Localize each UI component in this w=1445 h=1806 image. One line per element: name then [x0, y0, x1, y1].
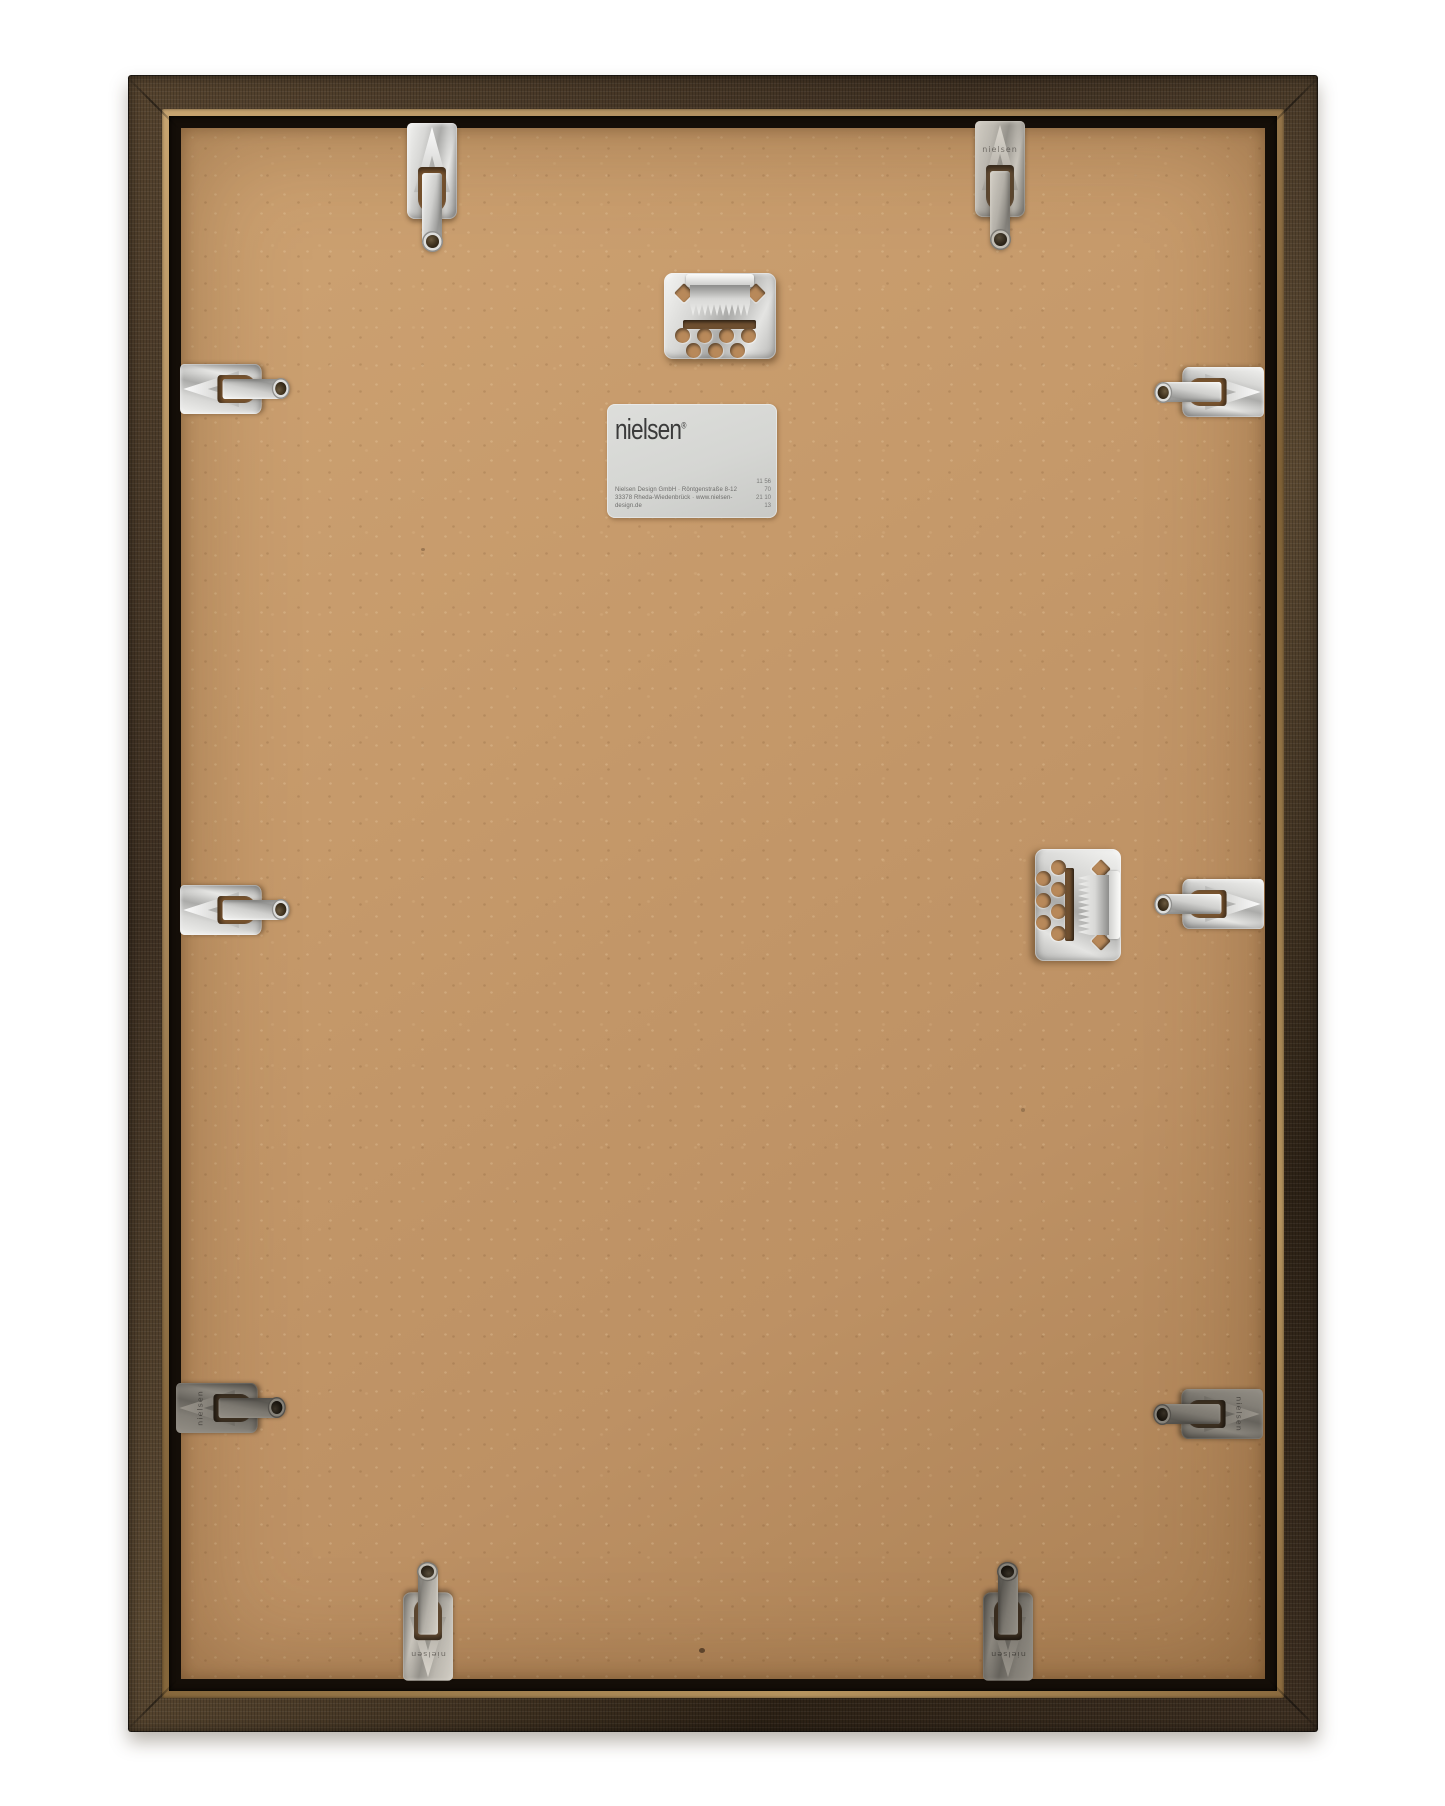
hanger-hole	[741, 328, 756, 343]
hanger-hole	[1052, 904, 1067, 919]
hanger-hole	[1037, 893, 1052, 908]
sawtooth-hanger-top-center	[664, 273, 776, 359]
hanger-hole	[1037, 915, 1052, 930]
hanger-hole	[1037, 871, 1052, 886]
rivet-icon	[1158, 386, 1169, 399]
spring-clip-right-top	[1150, 367, 1264, 417]
label-address: Nielsen Design GmbH · Röntgenstraße 8-12…	[615, 486, 749, 510]
registered-trademark-icon: ®	[681, 420, 685, 430]
label-fine-print: Nielsen Design GmbH · Röntgenstraße 8-12…	[615, 478, 771, 510]
miter-joint-bottom-right	[1266, 1677, 1321, 1732]
label-codes: 11 56 70 21 10 13	[749, 478, 771, 510]
code-line-1: 11 56 70	[749, 478, 771, 494]
hanger-hole	[719, 328, 734, 343]
sawtooth-hanger-right-middle	[1035, 849, 1121, 961]
board-speck	[699, 1648, 705, 1653]
miter-joint-top-right	[1266, 75, 1321, 130]
brand-logo-text: nielsen	[615, 414, 681, 446]
rivet-icon	[994, 233, 1007, 246]
spring-clip-left-top	[180, 364, 294, 414]
spring-clip-left-bottom: nielsen	[176, 1383, 290, 1433]
spring-clip-bottom-left: nielsen	[403, 1557, 453, 1680]
spring-clip-bottom-right: nielsen	[983, 1557, 1033, 1680]
hanger-slot	[1065, 868, 1074, 941]
hanger-hole	[730, 343, 745, 358]
hanger-hole	[686, 343, 701, 358]
clip-stamp-text: nielsen	[403, 1650, 453, 1658]
hanger-hole	[1052, 882, 1067, 897]
brand-logo: nielsen®	[615, 414, 686, 447]
address-line-2: 33378 Rheda-Wiedenbrück · www.nielsen-de…	[615, 494, 749, 510]
board-speck	[1021, 1108, 1025, 1112]
miter-joint-bottom-left	[125, 1677, 180, 1732]
nielsen-label-sticker: nielsen® Nielsen Design GmbH · Röntgenst…	[607, 404, 777, 518]
hanger-hole	[1052, 926, 1067, 941]
rivet-icon	[1157, 1408, 1168, 1421]
hanger-hole	[1052, 860, 1067, 875]
clip-stamp-text: nielsen	[1235, 1389, 1243, 1439]
hanger-hole	[697, 328, 712, 343]
rivet-icon	[426, 235, 439, 248]
clip-stamp-text: nielsen	[983, 1650, 1033, 1658]
rivet-icon	[1158, 898, 1169, 911]
hanger-hole	[675, 328, 690, 343]
code-line-2: 21 10 13	[749, 494, 771, 510]
address-line-1: Nielsen Design GmbH · Röntgenstraße 8-12	[615, 486, 749, 494]
clip-stamp-text: nielsen	[196, 1383, 204, 1433]
miter-joint-top-left	[125, 75, 180, 130]
spring-clip-top-right: nielsen	[975, 121, 1025, 255]
spring-clip-right-bottom: nielsen	[1149, 1389, 1263, 1439]
spring-clip-left-middle	[180, 885, 294, 935]
photo-canvas: nielsen nielsen nielsen	[0, 0, 1445, 1806]
hanger-hole	[708, 343, 723, 358]
clip-stamp-text: nielsen	[975, 145, 1025, 154]
spring-clip-right-middle	[1150, 879, 1264, 929]
board-speck	[421, 548, 425, 551]
spring-clip-top-left	[407, 123, 457, 257]
